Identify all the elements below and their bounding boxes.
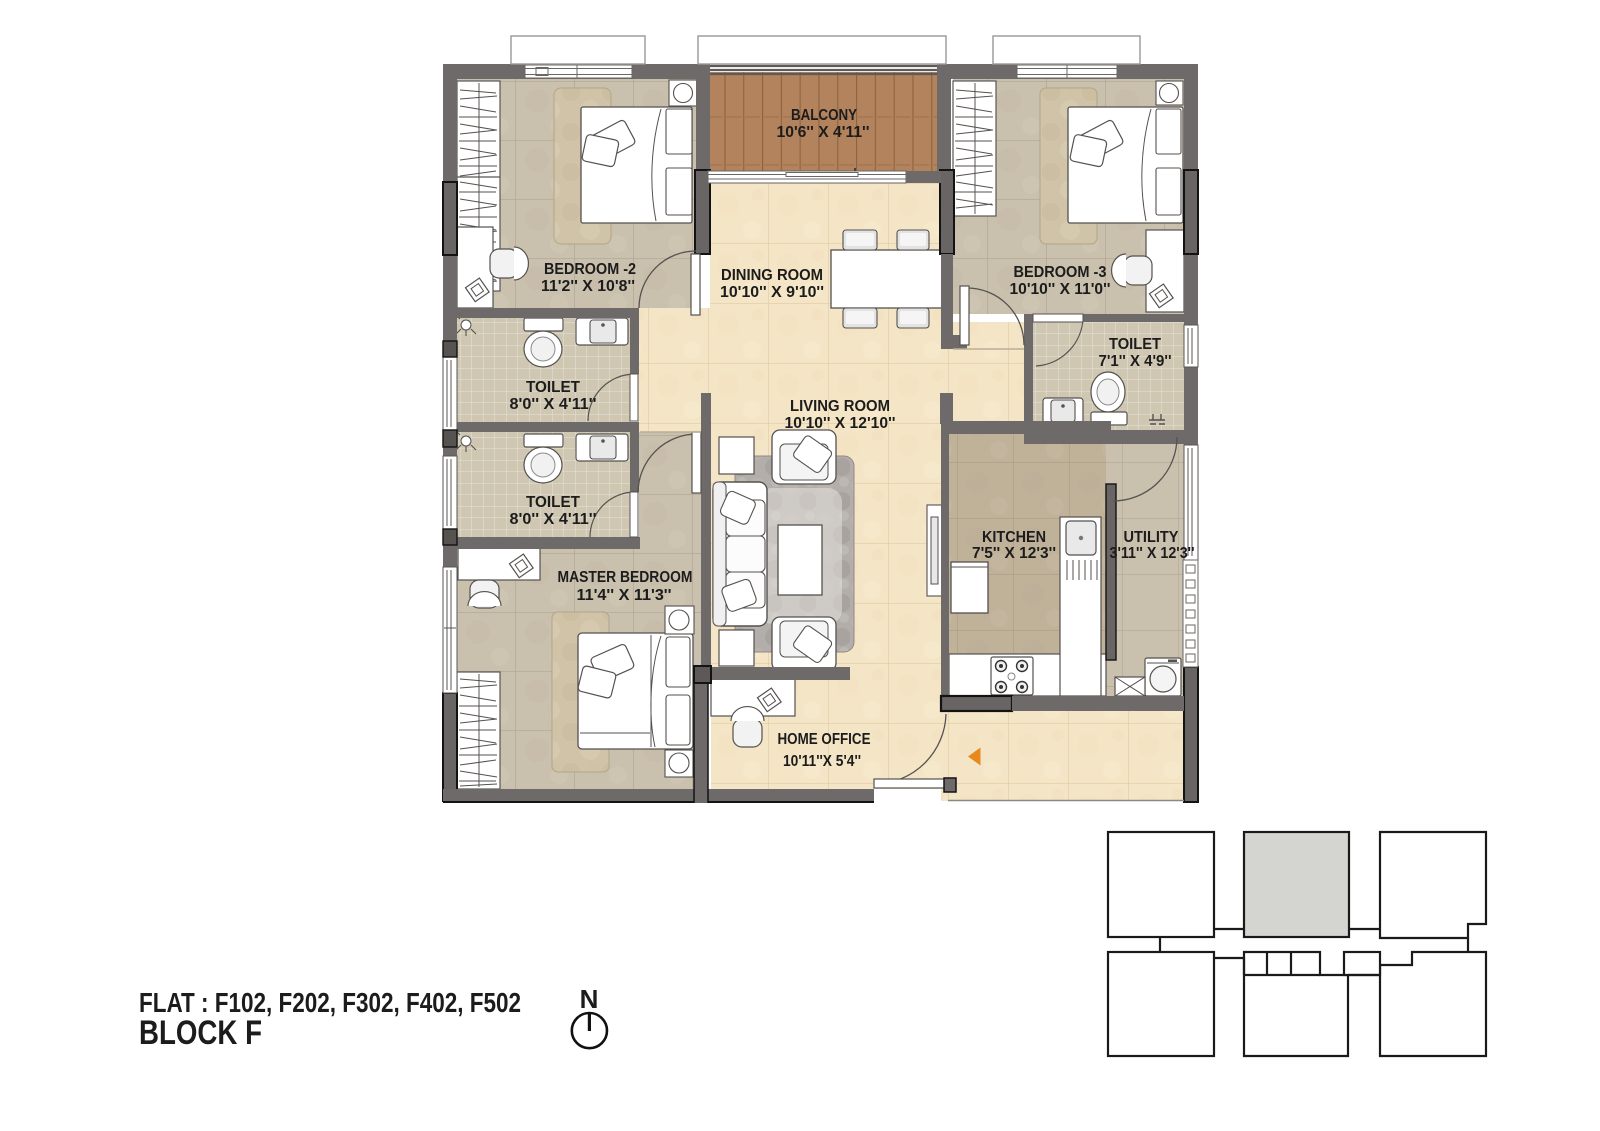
svg-text:11'4'' X 11'3'': 11'4'' X 11'3'' bbox=[577, 587, 672, 604]
svg-text:8'0'' X 4'11'': 8'0'' X 4'11'' bbox=[510, 511, 597, 528]
svg-text:10'10'' X 9'10'': 10'10'' X 9'10'' bbox=[720, 284, 824, 301]
svg-text:7'1'' X 4'9'': 7'1'' X 4'9'' bbox=[1099, 353, 1172, 370]
svg-text:10'6'' X 4'11'': 10'6'' X 4'11'' bbox=[777, 124, 870, 141]
svg-text:8'0'' X 4'11'': 8'0'' X 4'11'' bbox=[510, 396, 597, 413]
svg-text:TOILET: TOILET bbox=[526, 494, 580, 511]
svg-text:TOILET: TOILET bbox=[526, 379, 580, 396]
svg-text:LIVING ROOM: LIVING ROOM bbox=[790, 398, 890, 415]
svg-text:11'2'' X 10'8'': 11'2'' X 10'8'' bbox=[541, 278, 635, 295]
svg-text:BLOCK F: BLOCK F bbox=[139, 1014, 262, 1052]
svg-text:UTILITY: UTILITY bbox=[1124, 529, 1179, 546]
svg-text:DINING ROOM: DINING ROOM bbox=[721, 267, 823, 284]
svg-text:10'11''X 5'4'': 10'11''X 5'4'' bbox=[783, 753, 861, 770]
svg-text:BEDROOM -2: BEDROOM -2 bbox=[544, 261, 636, 278]
svg-text:BEDROOM -3: BEDROOM -3 bbox=[1014, 264, 1107, 281]
svg-text:10'10'' X 11'0'': 10'10'' X 11'0'' bbox=[1010, 281, 1111, 298]
svg-text:MASTER BEDROOM: MASTER BEDROOM bbox=[558, 569, 693, 586]
svg-text:BALCONY: BALCONY bbox=[791, 107, 857, 124]
svg-text:TOILET: TOILET bbox=[1109, 336, 1161, 353]
svg-text:N: N bbox=[580, 984, 599, 1014]
svg-text:HOME OFFICE: HOME OFFICE bbox=[778, 731, 871, 748]
svg-text:KITCHEN: KITCHEN bbox=[982, 529, 1046, 546]
svg-text:3'11'' X 12'3'': 3'11'' X 12'3'' bbox=[1110, 545, 1195, 562]
svg-text:7'5'' X 12'3'': 7'5'' X 12'3'' bbox=[972, 545, 1056, 562]
svg-text:10'10'' X 12'10'': 10'10'' X 12'10'' bbox=[785, 415, 896, 432]
